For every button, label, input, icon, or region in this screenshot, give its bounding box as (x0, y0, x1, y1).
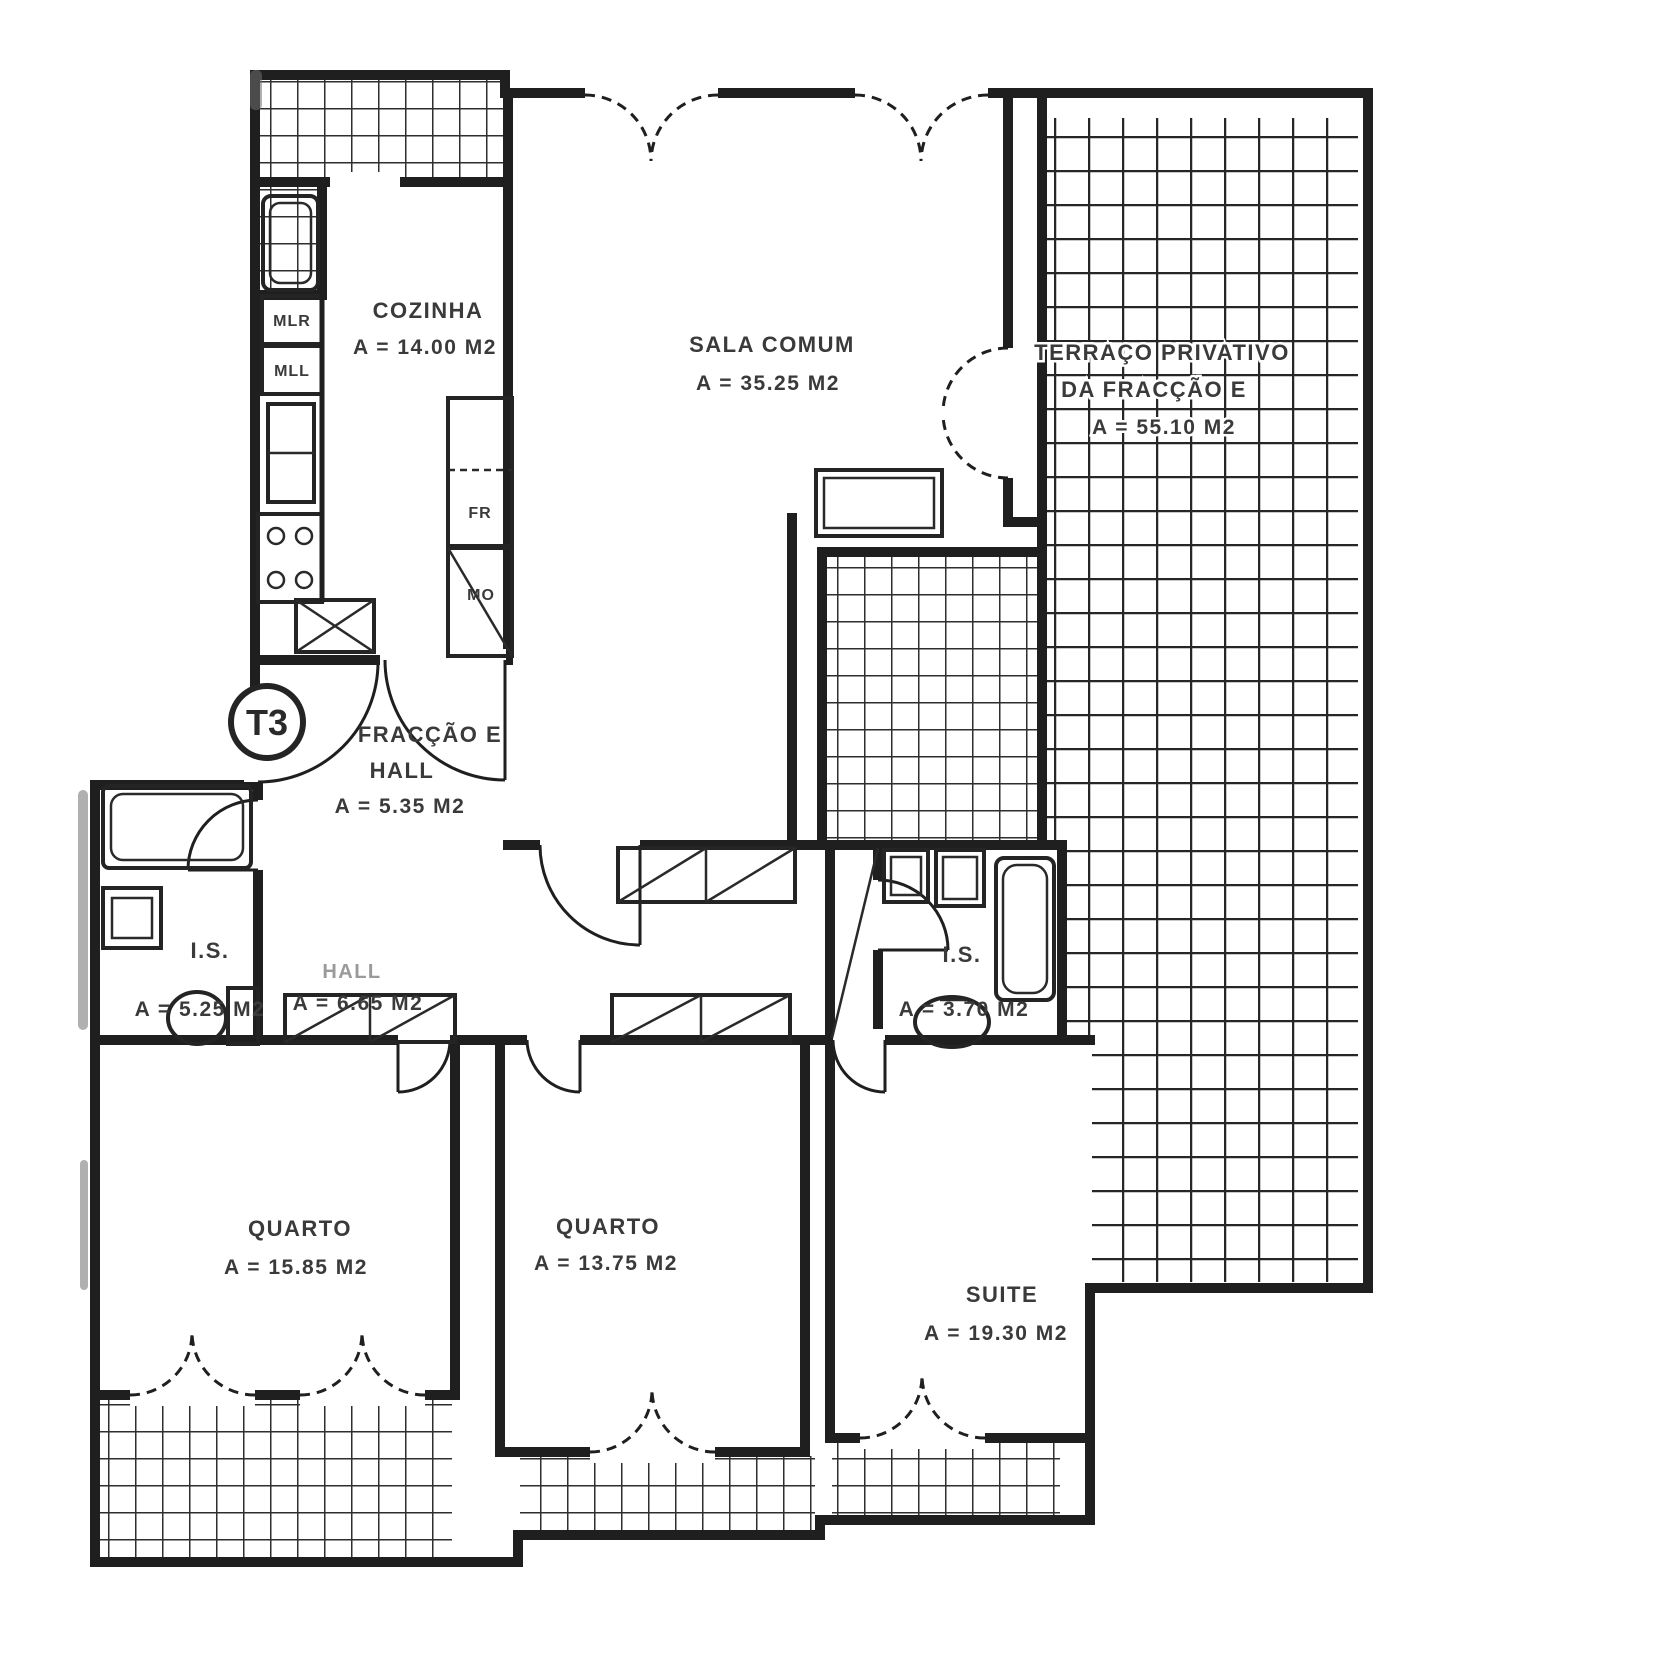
terraco-name-line2: DA FRACÇÃO E (1061, 377, 1247, 402)
hall-name: HALL (322, 961, 381, 983)
bathtub-right (996, 858, 1054, 1000)
is-left-name: I.S. (190, 938, 229, 963)
living-room-door-arc (540, 845, 640, 945)
wardrobe-corridor (618, 848, 795, 902)
cozinha-name: COZINHA (373, 298, 484, 323)
unit-type-label: T3 (246, 702, 288, 743)
bedroom1-balcony-tiles (98, 1398, 452, 1558)
is-left-area: A = 5.25 M2 (135, 998, 266, 1021)
quarto2-name: QUARTO (556, 1214, 660, 1239)
sideboard (816, 470, 942, 536)
fridge-closet (448, 398, 512, 546)
mlr-label: MLR (273, 313, 311, 330)
scan-artifacts (78, 70, 262, 1290)
is-right-area: A = 3.70 M2 (899, 998, 1030, 1021)
terraco-name-line1: TERRAÇO PRIVATIVO (1034, 340, 1290, 365)
quarto1-area: A = 15.85 M2 (224, 1256, 368, 1279)
suite-name: SUITE (966, 1282, 1038, 1307)
mo-label: MO (467, 587, 495, 604)
quarto2-area: A = 13.75 M2 (534, 1252, 678, 1275)
stove (258, 514, 322, 602)
entry-name-line2: HALL (370, 758, 435, 783)
entry-area: A = 5.35 M2 (335, 795, 466, 818)
terrace-tiles (1042, 118, 1358, 1282)
terraco-area: A = 55.10 M2 (1092, 416, 1236, 439)
wardrobe-bedroom2 (612, 995, 790, 1042)
sala-name: SALA COMUM (689, 332, 855, 357)
mll-label: MLL (274, 363, 310, 380)
floor-plan-scan: T3 COZINHA A = 14.00 M2 SALA COMUM A = 3… (0, 0, 1673, 1665)
entry-name-line1: FRACÇÃO E (358, 722, 502, 747)
hall-area: A = 6.65 M2 (293, 992, 424, 1015)
unit-type-badge: T3 (231, 686, 303, 758)
living-room-fixtures (816, 470, 942, 536)
quarto1-name: QUARTO (248, 1216, 352, 1241)
bedroom2-balcony-tiles (520, 1456, 815, 1532)
suite-balcony-tiles (832, 1442, 1060, 1516)
patio-tiles (822, 556, 1042, 842)
cozinha-area: A = 14.00 M2 (353, 336, 497, 359)
sala-area: A = 35.25 M2 (696, 372, 840, 395)
is-right-name: I.S. (942, 942, 981, 967)
suite-area: A = 19.30 M2 (924, 1322, 1068, 1345)
fr-label: FR (468, 505, 491, 522)
bathtub-left (103, 786, 251, 868)
floor-plan-drawing: T3 COZINHA A = 14.00 M2 SALA COMUM A = 3… (0, 0, 1673, 1665)
